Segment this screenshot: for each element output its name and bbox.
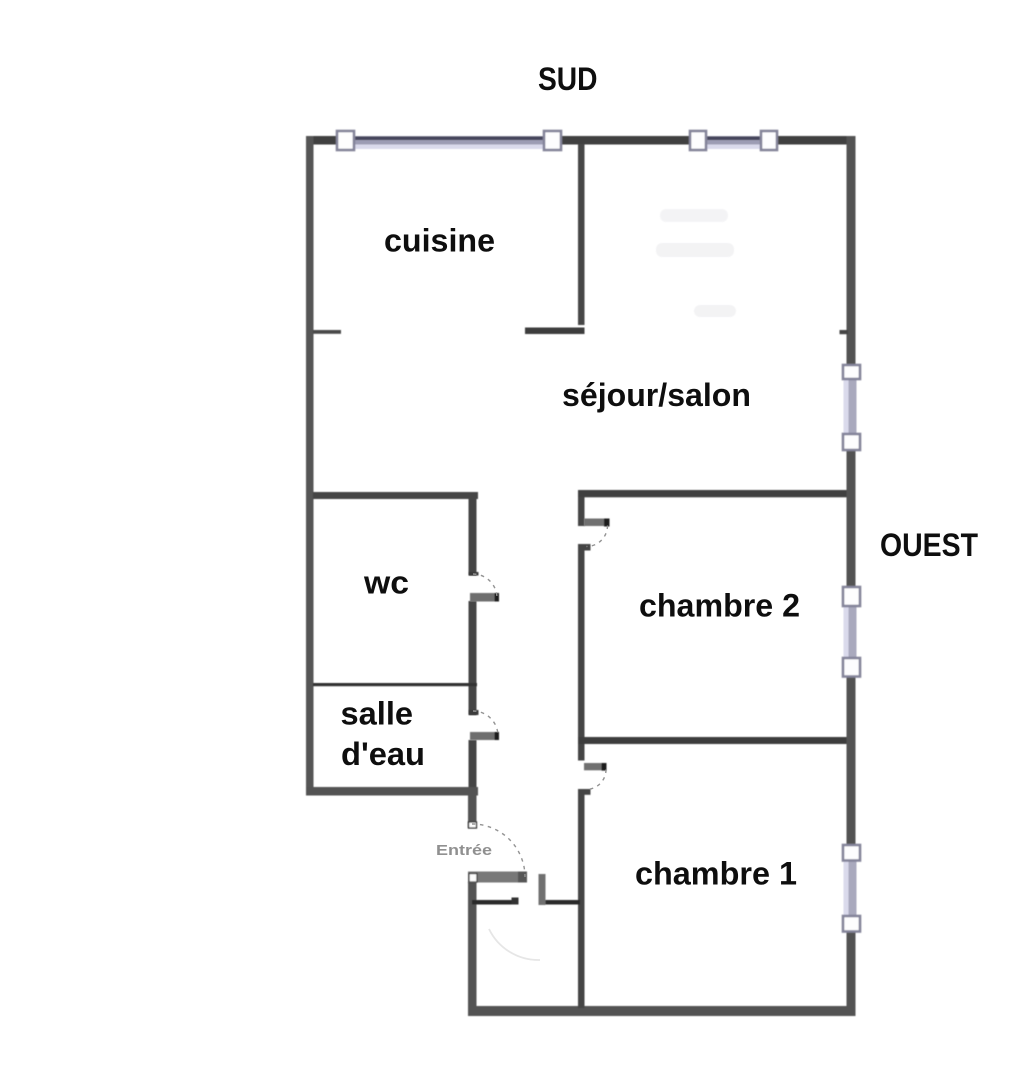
svg-text:wc: wc xyxy=(363,565,409,601)
svg-text:salle: salle xyxy=(341,696,414,732)
svg-text:SUD: SUD xyxy=(538,61,598,97)
svg-text:d'eau: d'eau xyxy=(341,736,425,772)
svg-text:chambre 1: chambre 1 xyxy=(635,856,797,892)
svg-text:séjour/salon: séjour/salon xyxy=(562,377,751,413)
svg-text:cuisine: cuisine xyxy=(384,223,495,259)
svg-text:chambre 2: chambre 2 xyxy=(639,588,800,624)
svg-text:Entrée: Entrée xyxy=(436,842,492,859)
svg-text:OUEST: OUEST xyxy=(880,527,978,563)
